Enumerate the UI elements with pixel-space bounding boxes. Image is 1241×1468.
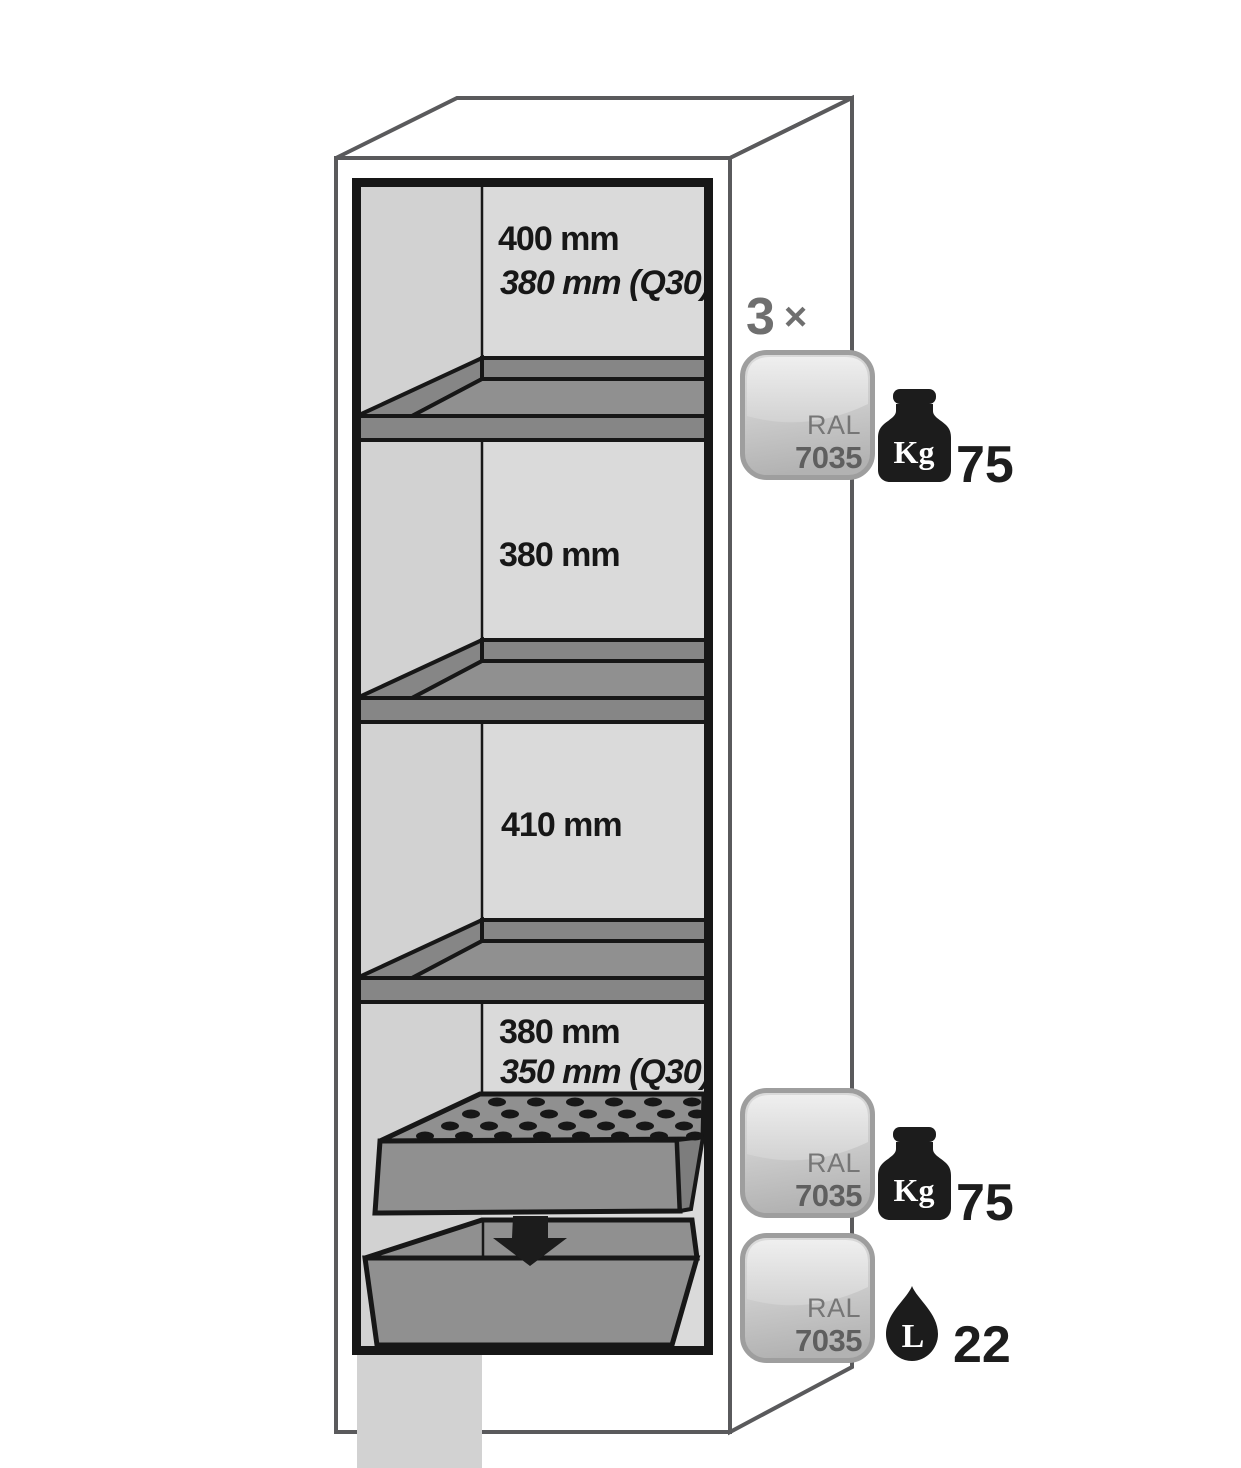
shelf-load-value: 75: [956, 436, 1014, 494]
compartment-3-height: 410 mm: [501, 806, 622, 844]
cabinet-interior: 400 mm 380 mm (Q30) 380 mm 410 mm 380 mm…: [356, 182, 712, 1468]
compartment-4-height: 380 mm: [499, 1013, 620, 1051]
liter-drop-icon: L: [886, 1286, 938, 1361]
badge-ral-code: 7035: [795, 440, 862, 475]
badge-ral-text: RAL: [807, 1148, 861, 1178]
badge-ral-text: RAL: [807, 410, 861, 440]
safety-cabinet-diagram: 400 mm 380 mm (Q30) 380 mm 410 mm 380 mm…: [0, 0, 1241, 1468]
sump-volume-value: 22: [953, 1316, 1011, 1374]
ral-badge-insert: RAL 7035: [743, 1091, 873, 1216]
kg-unit-label: Kg: [894, 1172, 935, 1208]
badge-ral-text: RAL: [807, 1293, 861, 1323]
insert-front-face: [375, 1140, 680, 1213]
liter-unit-label: L: [902, 1318, 925, 1355]
compartment-4-alt-height: 350 mm (Q30): [500, 1053, 712, 1091]
compartment-1-alt-height: 380 mm (Q30): [500, 264, 712, 302]
ral-badge-sump: RAL 7035: [743, 1236, 873, 1361]
cabinet-illustration: 400 mm 380 mm (Q30) 380 mm 410 mm 380 mm…: [0, 0, 1241, 1468]
sump-front-face: [365, 1258, 697, 1345]
insert-load-value: 75: [956, 1174, 1014, 1232]
kg-unit-label: Kg: [894, 434, 935, 470]
ral-badge-shelves: RAL 7035: [743, 353, 873, 478]
badge-ral-code: 7035: [795, 1178, 862, 1213]
kg-weight-icon: Kg: [878, 1127, 951, 1220]
kg-weight-icon: Kg: [878, 389, 951, 482]
compartment-2-height: 380 mm: [499, 536, 620, 574]
badge-ral-code: 7035: [795, 1323, 862, 1358]
compartment-1-height: 400 mm: [498, 220, 619, 258]
